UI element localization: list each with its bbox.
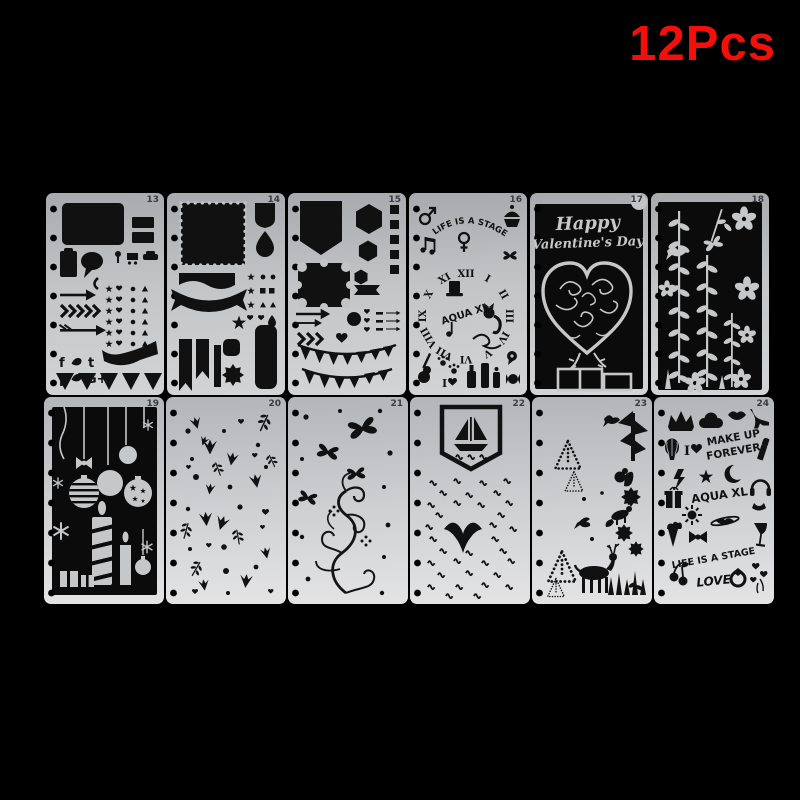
grass-icon [608, 571, 646, 595]
tumblr-icon: t [88, 356, 94, 371]
heart-balloons-icon [750, 563, 768, 593]
stencil-number: 15 [388, 195, 401, 205]
cupcake-icon [504, 205, 520, 227]
stencil-19-art [44, 397, 164, 604]
star-icon [699, 470, 713, 484]
stencil-card-19: 19 [44, 397, 164, 604]
sailboat-icon [454, 417, 488, 459]
butterfly-icon [298, 416, 378, 505]
cat-icon [484, 303, 501, 333]
binder-holes [292, 410, 299, 597]
speech-bubble-icon [81, 252, 103, 278]
dot [600, 491, 604, 495]
clipboard-icon [60, 248, 77, 277]
stencil-card-22: 22 [410, 397, 530, 604]
stencil-card-16: 16 LIFE IS A STAGE XII I II III [409, 193, 527, 395]
bikini-icon [752, 503, 766, 511]
butterfly-icon [503, 251, 516, 259]
star-icon [232, 316, 246, 330]
starburst-icon [222, 364, 244, 386]
pushpin-icon [115, 251, 121, 263]
ice-cream-icon [667, 522, 682, 547]
heart-icon [336, 333, 348, 343]
stencil-row-bottom: 19 [44, 397, 774, 604]
bunting-flags-top [298, 345, 396, 365]
heart-icon [691, 444, 702, 453]
music-notes-icon [420, 237, 435, 255]
stencil-card-15: 15 [288, 193, 406, 395]
svg-text:X: X [423, 288, 437, 300]
saturn-lips-icon [711, 515, 740, 527]
mini-arrows-column [386, 311, 400, 331]
squirrel-icon [615, 468, 634, 486]
stencil-card-17: 17 Happy Valentine's Day [530, 193, 648, 395]
stencil-number: 17 [630, 195, 643, 205]
bauble-icon [119, 446, 137, 464]
bird-icon [603, 415, 620, 427]
headline-line1: Happy [554, 212, 622, 235]
high-heel-icon [750, 409, 769, 429]
pennants-icon [179, 339, 209, 391]
fox-icon [606, 501, 632, 527]
chevrons-icon [298, 333, 322, 345]
stencil-number: 16 [509, 195, 522, 205]
makeup-art: I MAKE UP FOREVER AQUA XL [665, 409, 772, 593]
stencil-14-art [167, 193, 285, 395]
banner-icon [179, 273, 235, 289]
love-text: LOVE [696, 572, 733, 590]
bottles-icon [467, 363, 500, 388]
triangle-row [56, 373, 162, 390]
binder-holes [50, 206, 57, 387]
circle-icon [347, 312, 361, 326]
stencil-16-art: LIFE IS A STAGE XII I II III IV V VI V [409, 193, 527, 395]
bunting-flags-bottom [302, 369, 392, 389]
stencil-card-24: 24 I MAKE UP FOREVER [654, 397, 774, 604]
i-text: I [442, 377, 447, 390]
svg-text:XII: XII [457, 269, 474, 280]
stage-text: LIFE IS A STAGE [671, 546, 756, 571]
guitar-icon [418, 353, 431, 383]
stencil-23-art [532, 397, 652, 604]
bar-icon [214, 345, 221, 387]
butterfly-flourish-art [298, 409, 393, 595]
scalloped-frame-icon [181, 203, 245, 265]
shape-grid [247, 273, 276, 327]
facebook-icon: f [59, 356, 65, 371]
binder-holes [413, 206, 420, 387]
stencil-21-art [288, 397, 408, 604]
binder-holes [658, 410, 665, 597]
brand-text: AQUA XL [690, 484, 749, 506]
stencil-number: 20 [268, 399, 281, 409]
phone-icon [95, 278, 99, 289]
cloud-icon [699, 413, 723, 429]
square-column [390, 205, 399, 274]
dot [590, 537, 594, 541]
svg-text:III: III [503, 309, 514, 323]
stencil-15-art [288, 193, 406, 395]
stencil-18-art [651, 193, 769, 395]
shield-icon [255, 203, 275, 228]
binder-holes [170, 410, 177, 597]
stencil-22-art [410, 397, 530, 604]
svg-text:I: I [482, 273, 492, 285]
brand-text: AQUA XL [440, 302, 491, 328]
waves [426, 479, 516, 598]
stencil-24-art: I MAKE UP FOREVER AQUA XL [654, 397, 774, 604]
quantity-badge: 12Pcs [629, 16, 776, 72]
i-text: I [684, 444, 690, 459]
bird-icon [72, 358, 82, 365]
svg-text:VII: VII [434, 344, 455, 363]
female-symbol-icon [459, 233, 469, 252]
chevrons-icon [61, 305, 99, 317]
label-bars-icon [132, 217, 154, 243]
stencil-number: 23 [634, 399, 647, 409]
arc-text: LIFE IS A STAGE [431, 216, 509, 239]
flower-burst-icon [615, 487, 644, 557]
shape-grid [105, 285, 148, 347]
arrow-icon [296, 319, 322, 327]
teardrop-icon [256, 231, 274, 257]
forest-art [548, 411, 648, 597]
wine-glass-icon [754, 523, 767, 547]
crown-icon [668, 411, 694, 431]
shopping-cart-icon [127, 253, 138, 265]
male-symbol-icon [420, 208, 435, 224]
stencil-card-14: 14 [167, 193, 285, 395]
stencil-number: 21 [390, 399, 403, 409]
hexagons-icon [355, 204, 382, 285]
lips-icon [728, 411, 746, 420]
feather-arrow-icon [59, 324, 106, 336]
stencil-number: 13 [146, 195, 159, 205]
pointed-banner-icon [300, 201, 342, 255]
arrow-icon [60, 290, 96, 301]
nautical-art [426, 407, 516, 598]
stencil-card-18: 18 [651, 193, 769, 395]
stencil-number: 14 [267, 195, 280, 205]
bird-icon [574, 517, 590, 529]
ornate-frame-icon [294, 259, 354, 311]
ring-icon [731, 568, 745, 586]
ribbon-icon [354, 285, 380, 295]
stencil-number: 24 [756, 399, 769, 409]
stencil-20-art [166, 397, 286, 604]
svg-text:II: II [496, 288, 510, 302]
stencil-card-13: 13 [46, 193, 164, 395]
stencil-card-21: 21 [288, 397, 408, 604]
svg-text:VI: VI [459, 353, 473, 364]
tulip-icon [189, 416, 272, 592]
tall-label-icon [255, 325, 277, 389]
bow-icon [689, 531, 707, 543]
product-photo: 12Pcs 13 [0, 0, 800, 800]
gift-icon [665, 488, 683, 509]
hot-air-balloon-icon [665, 439, 679, 461]
stencil-number: 19 [146, 399, 159, 409]
speech-pin-icon [507, 351, 517, 365]
stencil-number: 22 [512, 399, 525, 409]
stencil-card-23: 23 [532, 397, 652, 604]
scatter-art [178, 412, 279, 595]
svg-text:IX: IX [418, 310, 429, 323]
bauble-icon [97, 470, 123, 496]
stencil-13-art: f t p G+ [46, 193, 164, 395]
stencil-17-art: Happy Valentine's Day [530, 193, 648, 395]
headphones-icon [750, 481, 771, 497]
rounded-square-icon [223, 339, 240, 356]
sun-icon [682, 505, 702, 525]
rounded-frame-icon [62, 203, 124, 245]
ribbon-icon [171, 289, 247, 312]
dashes-column [376, 312, 383, 331]
binder-holes [292, 206, 299, 387]
swirl-flourish-icon [316, 473, 374, 593]
moon-icon [725, 465, 741, 483]
heart-icon [448, 378, 457, 386]
dotted-tree-icon [548, 441, 583, 597]
stencil-row-top: 13 [46, 193, 769, 395]
binder-holes [414, 410, 421, 597]
tree-icon [618, 411, 648, 461]
binder-holes [536, 410, 543, 597]
candy-icon [506, 374, 520, 384]
svg-text:VIII: VIII [419, 325, 440, 351]
dot [582, 497, 586, 501]
stencil-number: 18 [751, 195, 764, 205]
stencil-card-20: 20 [166, 397, 286, 604]
whale-tail-icon [444, 523, 482, 553]
hearts-column [364, 309, 370, 332]
car-icon [143, 251, 158, 260]
